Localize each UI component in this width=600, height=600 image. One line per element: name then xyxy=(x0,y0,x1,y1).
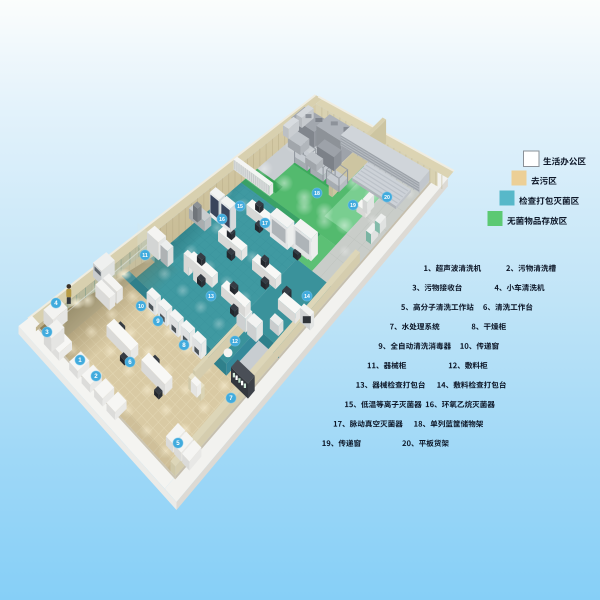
svg-text:10: 10 xyxy=(138,304,144,310)
svg-text:8: 8 xyxy=(182,342,186,349)
svg-text:16: 16 xyxy=(219,217,225,223)
svg-text:12: 12 xyxy=(232,339,238,345)
svg-text:5: 5 xyxy=(176,440,180,447)
svg-text:6: 6 xyxy=(128,359,132,366)
svg-text:9: 9 xyxy=(156,318,160,325)
svg-text:1: 1 xyxy=(78,357,82,364)
svg-text:15: 15 xyxy=(237,204,243,210)
svg-text:17: 17 xyxy=(262,221,268,227)
svg-text:20: 20 xyxy=(384,195,390,201)
svg-text:2: 2 xyxy=(94,373,98,380)
svg-text:11: 11 xyxy=(142,253,148,259)
svg-text:14: 14 xyxy=(304,294,310,300)
svg-text:19: 19 xyxy=(350,203,356,209)
svg-text:4: 4 xyxy=(54,300,58,307)
svg-text:7: 7 xyxy=(229,395,233,402)
svg-text:3: 3 xyxy=(45,329,49,336)
svg-text:13: 13 xyxy=(208,294,214,300)
svg-text:18: 18 xyxy=(314,191,320,197)
